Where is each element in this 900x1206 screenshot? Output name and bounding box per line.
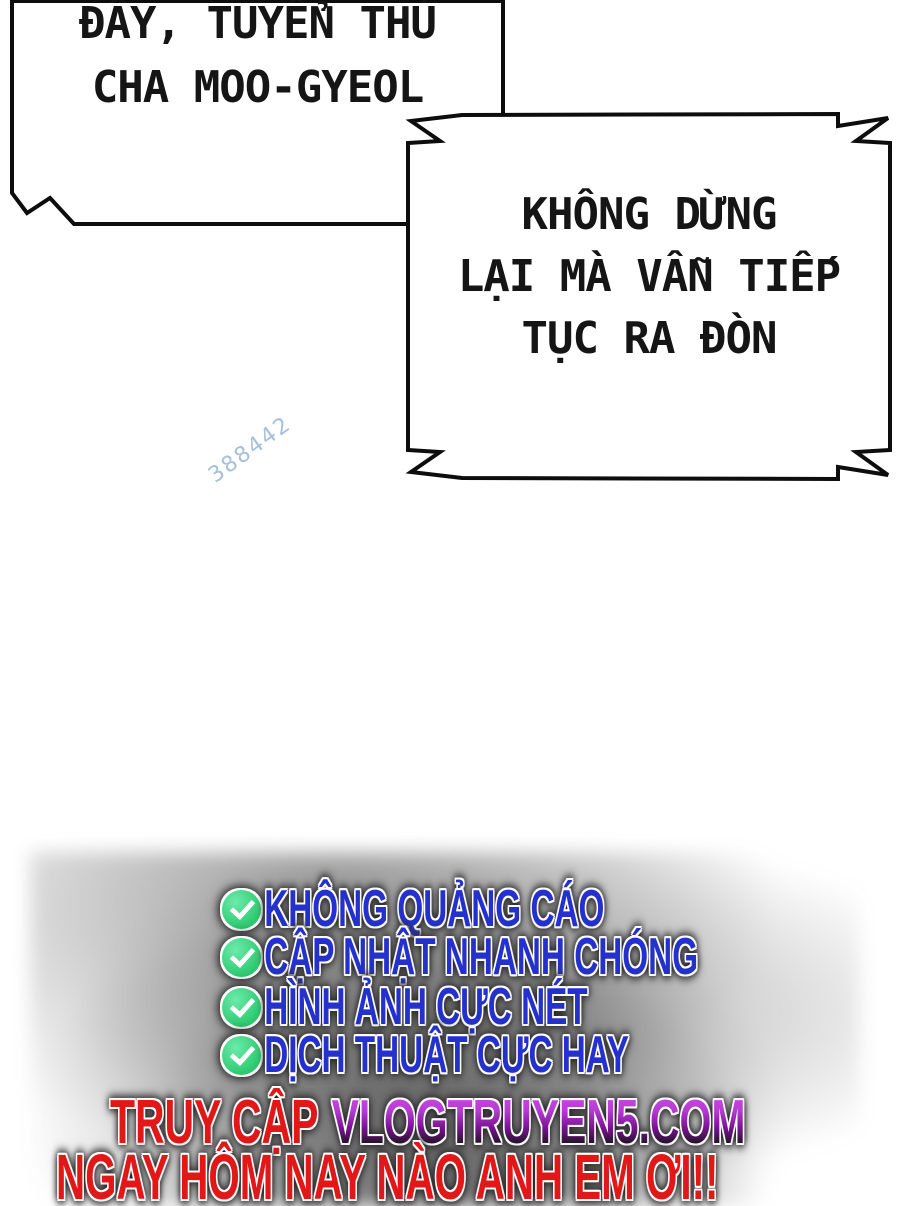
speech-bubble-1: ĐÂY, TUYỂN THỦ CHA MOO-GYEOL (12, 0, 503, 120)
promo-checklist-row: KHÔNG QUẢNG CÁO (222, 887, 798, 931)
check-circle-icon (222, 1036, 261, 1075)
promo-checklist-item: CẬP NHẬT NHANH CHÓNG (261, 935, 698, 979)
check-circle-icon (222, 890, 261, 929)
promo-checklist-row: DỊCH THUẬT CỰC HAY (222, 1033, 836, 1077)
bubble1-line1: ĐÂY, TUYỂN THỦ (12, 0, 503, 56)
bubble1-line2: CHA MOO-GYEOL (12, 56, 503, 120)
check-circle-icon (222, 988, 261, 1027)
promo-checklist-row: CẬP NHẬT NHANH CHÓNG (222, 935, 900, 979)
promo-checklist-row: HÌNH ẢNH CỰC NÉT (222, 985, 771, 1029)
promo-checklist-item: HÌNH ẢNH CỰC NÉT (261, 985, 588, 1029)
bubble2-line3: TỤC RA ĐÒN (408, 308, 890, 370)
comic-page: ĐÂY, TUYỂN THỦ CHA MOO-GYEOL KHÔNG DỪNG … (0, 0, 900, 1206)
promo-checklist-item: KHÔNG QUẢNG CÁO (261, 887, 604, 931)
check-circle-icon (222, 938, 261, 977)
speech-bubble-2: KHÔNG DỪNG LẠI MÀ VẪN TIẾP TỤC RA ĐÒN (408, 184, 890, 370)
promo-cta-line2: NGAY HÔM NAY NÀO ANH EM ƠI!! (56, 1146, 718, 1206)
bubble2-line2: LẠI MÀ VẪN TIẾP (408, 246, 890, 308)
promo-checklist-item: DỊCH THUẬT CỰC HAY (261, 1033, 629, 1077)
bubble2-line1: KHÔNG DỪNG (408, 184, 890, 246)
